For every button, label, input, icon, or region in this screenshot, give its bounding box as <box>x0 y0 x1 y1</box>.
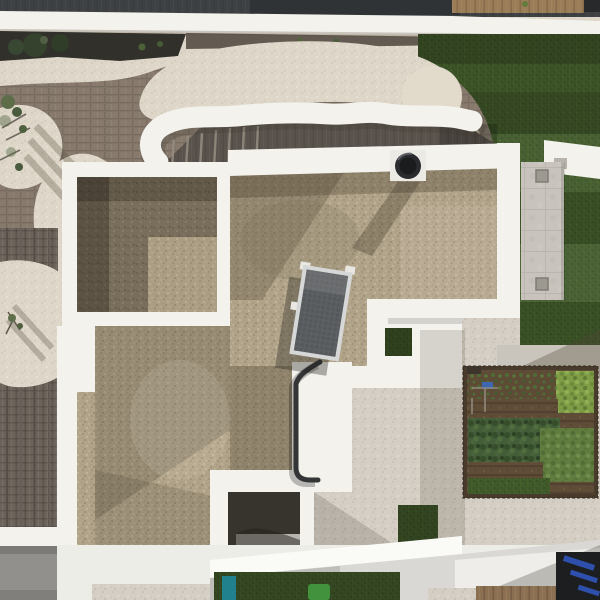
photo-tint <box>0 0 600 600</box>
aerial-photo-rooftop-villa <box>0 0 600 600</box>
photo-canvas <box>0 0 600 600</box>
